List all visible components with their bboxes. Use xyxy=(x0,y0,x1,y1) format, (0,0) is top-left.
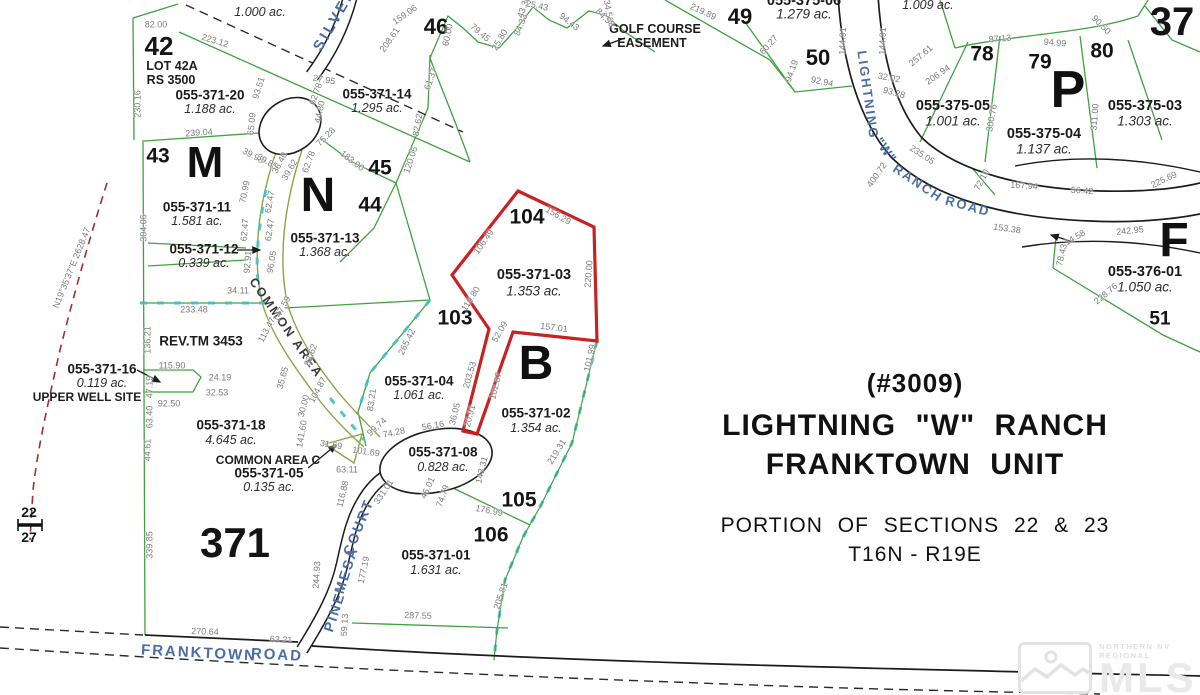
dimension-label: 34.11 xyxy=(227,287,249,296)
parcel-acreage: 1.137 ac. xyxy=(1016,142,1072,156)
dimension-label: 228.76 xyxy=(1093,282,1120,307)
dimension-label: 400.72 xyxy=(865,161,888,189)
mls-watermark-big-text: MLS xyxy=(1099,660,1200,695)
road-name: COMMON AREA xyxy=(247,276,325,380)
dimension-label: 44.61 xyxy=(144,439,153,462)
dimension-label: 87.13 xyxy=(988,34,1011,45)
dimension-label: 156.29 xyxy=(544,205,572,227)
dimension-label: 65.09 xyxy=(246,112,257,135)
road-name: COURT xyxy=(340,497,375,558)
dimension-label: 120.06 xyxy=(402,146,419,175)
lot-number: 43 xyxy=(146,146,169,167)
dimension-label: 265.42 xyxy=(397,328,417,357)
parcel-acreage: 0.828 ac. xyxy=(417,461,468,474)
dimension-label: 101.99 xyxy=(583,344,598,373)
dimension-label: 102.87 xyxy=(488,372,503,401)
map-note: GOLF COURSE xyxy=(609,23,701,36)
parcel-acreage: 0.339 ac. xyxy=(178,257,229,270)
dimension-label: 235.05 xyxy=(908,144,936,167)
dimension-label: 304.06 xyxy=(140,214,149,242)
dimension-label: 56.16 xyxy=(421,420,445,433)
dimension-label: 63.40 xyxy=(146,406,155,429)
block-letter: B xyxy=(519,340,554,388)
parcel-apn: 055-371-02 xyxy=(501,406,570,420)
dimension-label: 115.90 xyxy=(159,362,186,371)
parcel-apn: 055-371-04 xyxy=(384,374,453,388)
map-note: RS 3500 xyxy=(147,74,196,87)
parcel-apn: 055-375-03 xyxy=(1108,99,1182,114)
road-name: ROAD xyxy=(944,194,992,219)
dimension-label: 257.61 xyxy=(908,44,935,69)
dimension-label: 79.45 xyxy=(468,22,491,43)
block-letter: M xyxy=(187,141,224,185)
dimension-label: 75.28 xyxy=(315,126,337,148)
dimension-label: 339.85 xyxy=(146,531,155,559)
dimension-label: 205.81 xyxy=(492,582,509,611)
dimension-label: 176.99 xyxy=(475,504,504,518)
dimension-label: 92.91 xyxy=(243,250,254,273)
parcel-acreage: 1.295 ac. xyxy=(351,102,402,115)
dimension-label: 225.69 xyxy=(1150,170,1179,190)
subdivision-name-line1: LIGHTNING "W" RANCH xyxy=(650,409,1180,443)
parcel-apn: 055-371-01 xyxy=(401,548,470,562)
parcel-acreage: 1.061 ac. xyxy=(393,389,444,402)
dimension-label: 136.21 xyxy=(144,326,153,354)
lot-number: 371 xyxy=(200,522,270,564)
lot-number: 45 xyxy=(368,158,391,179)
dimension-label: 287.55 xyxy=(404,611,432,621)
township-note: T16N - R19E xyxy=(650,543,1180,567)
parcel-acreage: 1.000 ac. xyxy=(234,6,285,19)
dimension-label: 56.42 xyxy=(1070,186,1093,197)
lot-number: 42 xyxy=(145,33,174,59)
dimension-label: 94.19 xyxy=(784,59,800,83)
dimension-label: 25.43 xyxy=(525,0,549,13)
lot-number: 78 xyxy=(970,44,993,65)
dimension-label: 94.43 xyxy=(557,12,580,33)
lot-number: 104 xyxy=(509,207,544,228)
lot-number: 37 xyxy=(1150,2,1195,42)
dimension-label: 63.11 xyxy=(336,466,358,475)
lot-number: 105 xyxy=(501,490,536,511)
dimension-label: 208.61 xyxy=(378,26,401,54)
dimension-label: 74.28 xyxy=(382,426,406,439)
plat-map: 4243444546495051787980103104105106371372… xyxy=(0,0,1200,695)
dimension-label: 62.47 xyxy=(264,218,276,242)
parcel-acreage: 4.645 ac. xyxy=(205,434,256,447)
dimension-label: 36.05 xyxy=(448,402,462,426)
map-note: LOT 42A xyxy=(146,60,197,73)
parcel-apn: 055-371-08 xyxy=(408,445,477,459)
dimension-label: 63.21 xyxy=(270,635,293,645)
mls-logo-icon xyxy=(1018,642,1092,694)
parcel-acreage: 1.001 ac. xyxy=(925,114,981,128)
dimension-label: 70.99 xyxy=(238,180,251,204)
dimension-label: 203.53 xyxy=(462,361,478,390)
parcel-acreage: 0.119 ac. xyxy=(77,377,128,390)
subdivision-name-line2: FRANKTOWN UNIT xyxy=(650,448,1180,482)
parcel-acreage: 1.050 ac. xyxy=(1117,280,1173,294)
parcel-acreage: 1.303 ac. xyxy=(1117,114,1173,128)
parcel-apn: 055-371-11 xyxy=(163,200,231,214)
dimension-label: 82.62 xyxy=(412,113,425,137)
parcel-apn: 055-375-04 xyxy=(1007,127,1081,142)
dimension-label: 93.28 xyxy=(882,86,906,101)
dimension-label: 144.91 xyxy=(838,27,848,55)
parcel-acreage: 1.354 ac. xyxy=(510,422,561,435)
dimension-label: 31.69 xyxy=(319,439,343,451)
parcel-acreage: 1.581 ac. xyxy=(171,215,222,228)
dimension-label: 331.01 xyxy=(373,478,396,506)
block-letter: N xyxy=(301,172,336,220)
dimension-label: 167.94 xyxy=(1010,181,1038,192)
parcel-apn: 055-371-20 xyxy=(175,88,244,102)
dimension-label: 223.12 xyxy=(201,33,230,50)
map-note: EASEMENT xyxy=(617,37,686,50)
dimension-label: 20.91 xyxy=(463,404,477,428)
dimension-label: 24.19 xyxy=(209,374,232,383)
parcel-acreage: 1.279 ac. xyxy=(776,7,832,21)
lot-number: 51 xyxy=(1149,310,1170,329)
permit-number: (#3009) xyxy=(650,368,1180,399)
parcel-apn: 055-371-16 xyxy=(67,362,136,376)
dimension-label: 206.94 xyxy=(924,63,952,86)
dimension-label: 244.93 xyxy=(312,561,322,589)
block-letter: F xyxy=(1159,217,1188,265)
parcel-apn: 055-375-05 xyxy=(916,99,990,114)
dimension-label: 92.50 xyxy=(158,400,181,409)
title-block: (#3009) LIGHTNING "W" RANCH FRANKTOWN UN… xyxy=(650,368,1180,567)
dimension-label: 62.47 xyxy=(240,218,251,241)
dimension-label: 52.09 xyxy=(490,320,509,344)
dimension-label: 177.19 xyxy=(357,556,372,585)
parcel-acreage: 0.135 ac. xyxy=(243,481,294,494)
dimension-label: 233.48 xyxy=(180,306,208,315)
lot-number: 49 xyxy=(728,6,752,28)
dimension-label: 104.87 xyxy=(308,376,329,405)
dimension-label: 62.47 xyxy=(264,190,277,214)
sections-note: PORTION OF SECTIONS 22 & 23 xyxy=(650,514,1180,538)
dimension-label: 106.49 xyxy=(472,228,495,256)
dimension-label: 46.01 xyxy=(419,476,437,500)
dimension-label: 74.79 xyxy=(435,484,451,508)
dimension-label: 219.89 xyxy=(689,2,718,22)
dimension-label: 93.51 xyxy=(251,76,267,100)
lot-number: 50 xyxy=(806,47,830,69)
lot-number: 106 xyxy=(473,525,508,546)
dimension-label: 72.10 xyxy=(973,168,992,192)
map-note: UPPER WELL SITE xyxy=(33,391,141,403)
parcel-apn: 055-371-12 xyxy=(169,242,238,256)
dimension-label: 35.65 xyxy=(276,366,291,390)
parcel-apn: 055-371-14 xyxy=(342,87,411,101)
dimension-label: 96.05 xyxy=(266,250,279,274)
dimension-label: 144.91 xyxy=(878,27,888,55)
map-note: REV.TM 3453 xyxy=(159,334,243,348)
parcel-apn: 055-371-03 xyxy=(497,268,571,283)
dimension-label: 78.43 xyxy=(1055,243,1069,267)
dimension-label: 220.00 xyxy=(584,260,595,288)
dimension-label: 101.69 xyxy=(352,446,381,459)
dimension-label: 270.64 xyxy=(191,627,219,637)
dimension-label: 219.31 xyxy=(546,438,568,466)
dimension-label: 230.16 xyxy=(134,90,143,118)
road-name: FRANKTOWN xyxy=(141,642,258,663)
dimension-label: 183.00 xyxy=(338,149,365,173)
dimension-label: 116.88 xyxy=(336,480,351,508)
map-note: COMMON AREA C xyxy=(216,454,320,466)
road-name: SILVER xyxy=(311,0,360,54)
dimension-label: N19°35'37"E 2628.47 xyxy=(52,226,93,309)
dimension-label: 25.80 xyxy=(490,28,509,52)
lot-number: 79 xyxy=(1028,52,1051,73)
dimension-label: 94.99 xyxy=(1043,38,1066,49)
road-name: RANCH xyxy=(891,162,945,205)
dimension-label: 60.00 xyxy=(441,23,454,47)
dimension-label: 153.38 xyxy=(993,223,1022,236)
lot-number: 44 xyxy=(358,195,381,216)
lot-number: 80 xyxy=(1090,41,1113,62)
parcel-acreage: 1.009 ac. xyxy=(902,0,953,11)
dimension-label: 159.06 xyxy=(391,3,419,26)
dimension-label: 47.19 xyxy=(146,376,155,399)
dimension-label: 311.00 xyxy=(1090,103,1101,130)
parcel-apn: 055-371-05 xyxy=(234,466,303,480)
dimension-label: 141.60 xyxy=(295,420,309,449)
dimension-label: 239.04 xyxy=(185,128,213,139)
dimension-label: 59.13 xyxy=(340,614,350,637)
road-name: ROAD xyxy=(251,646,304,664)
block-letter: P xyxy=(1051,64,1086,116)
parcel-acreage: 1.368 ac. xyxy=(299,246,350,259)
parcel-acreage: 1.353 ac. xyxy=(506,284,562,298)
dimension-label: 82.00 xyxy=(145,21,168,30)
dimension-label: 300.76 xyxy=(985,104,999,133)
dimension-label: 32.02 xyxy=(877,72,901,85)
dimension-label: 60.27 xyxy=(758,34,780,57)
parcel-apn: 055-376-01 xyxy=(1108,265,1182,280)
parcel-acreage: 1.631 ac. xyxy=(410,564,461,577)
road-name: LIGHTNING xyxy=(855,50,880,140)
lot-number: 27 xyxy=(21,530,37,544)
dimension-label: 61.37 xyxy=(423,67,439,91)
dimension-label: 92.94 xyxy=(810,75,834,88)
dimension-label: 83.21 xyxy=(366,388,378,412)
dimension-label: 157.01 xyxy=(540,322,568,334)
dimension-label: 242.95 xyxy=(1116,225,1144,237)
road-name: "W" xyxy=(873,135,899,165)
map-labels-layer: 4243444546495051787980103104105106371372… xyxy=(0,0,1200,695)
dimension-label: 90.50 xyxy=(1090,14,1112,36)
parcel-apn: 055-371-18 xyxy=(196,418,265,432)
parcel-apn: 055-371-13 xyxy=(290,231,359,245)
parcel-acreage: 1.188 ac. xyxy=(184,103,235,116)
mls-watermark: NORTHERN NV REGIONAL MLS xyxy=(1018,642,1200,695)
dimension-label: 143.31 xyxy=(474,456,489,485)
mls-watermark-text: NORTHERN NV REGIONAL MLS xyxy=(1099,642,1200,695)
lot-number: 22 xyxy=(21,505,37,519)
dimension-label: 32.53 xyxy=(206,389,229,398)
